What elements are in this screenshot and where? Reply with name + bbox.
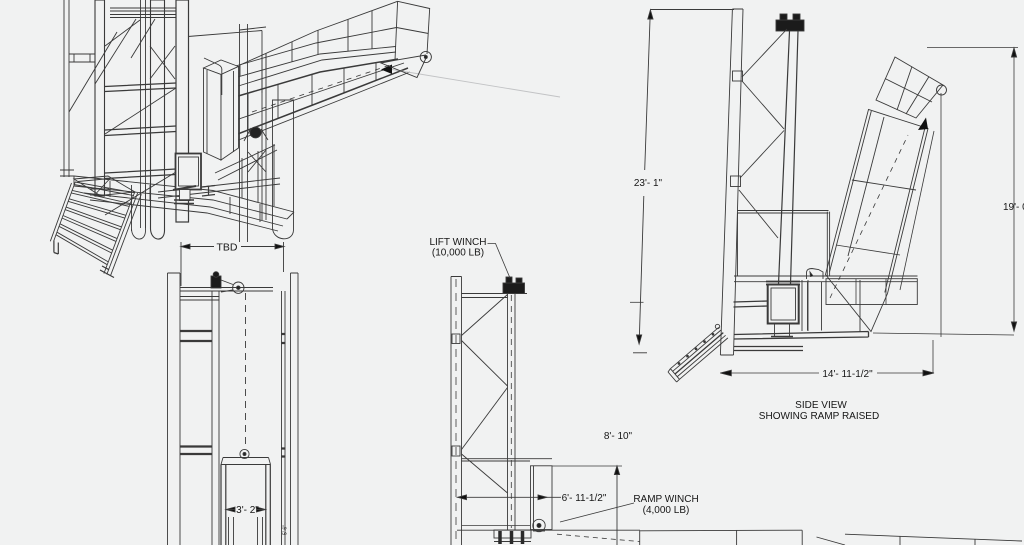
svg-text:(4,000 LB): (4,000 LB) bbox=[643, 505, 690, 516]
svg-text:LIFT WINCH: LIFT WINCH bbox=[429, 237, 486, 248]
svg-text:TBD: TBD bbox=[217, 242, 238, 254]
svg-text:5'-6": 5'-6" bbox=[283, 525, 289, 535]
svg-text:14'- 11-1/2": 14'- 11-1/2" bbox=[822, 369, 873, 380]
svg-text:(10,000 LB): (10,000 LB) bbox=[432, 248, 484, 259]
svg-text:8'- 10": 8'- 10" bbox=[604, 431, 633, 442]
svg-text:6'- 11-1/2": 6'- 11-1/2" bbox=[562, 493, 607, 504]
svg-text:SIDE VIEW: SIDE VIEW bbox=[795, 400, 847, 411]
svg-text:3'- 2": 3'- 2" bbox=[236, 505, 259, 516]
svg-text:RAMP WINCH: RAMP WINCH bbox=[633, 494, 698, 505]
svg-text:19'- 0": 19'- 0" bbox=[1003, 202, 1024, 213]
svg-text:23'- 1": 23'- 1" bbox=[634, 178, 663, 189]
svg-text:SHOWING RAMP RAISED: SHOWING RAMP RAISED bbox=[759, 411, 879, 422]
